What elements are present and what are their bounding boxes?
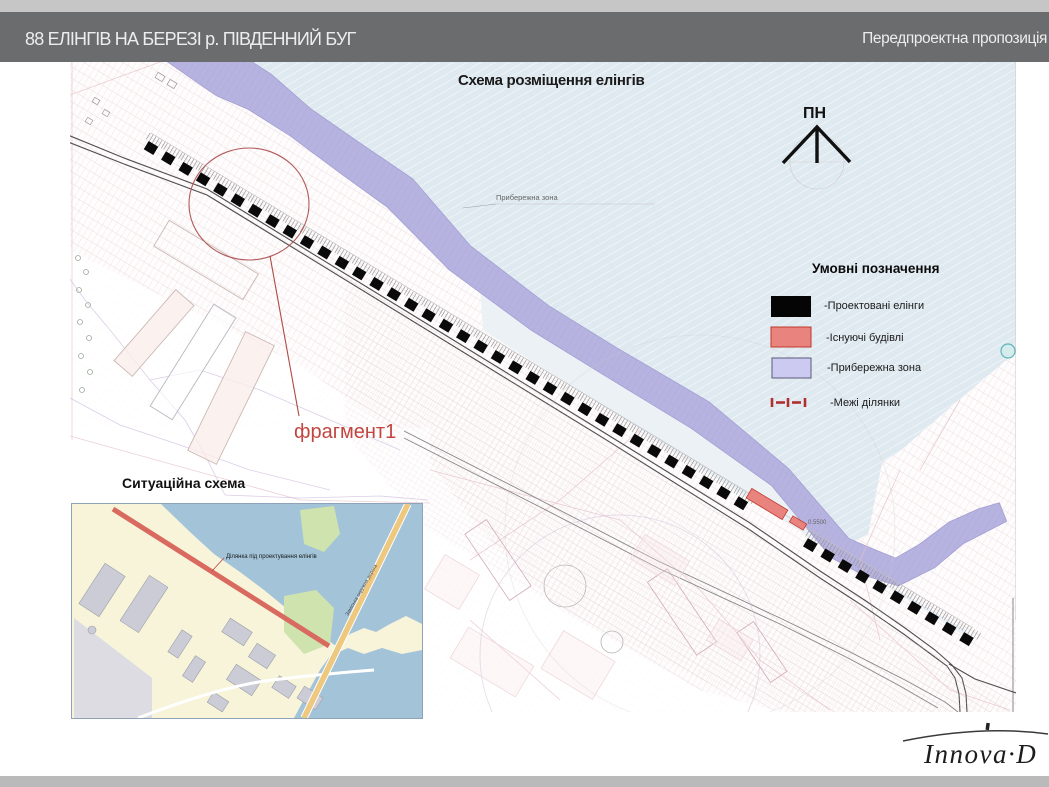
svg-text:Ділянка під проектування елінг: Ділянка під проектування елінгів <box>226 554 317 560</box>
